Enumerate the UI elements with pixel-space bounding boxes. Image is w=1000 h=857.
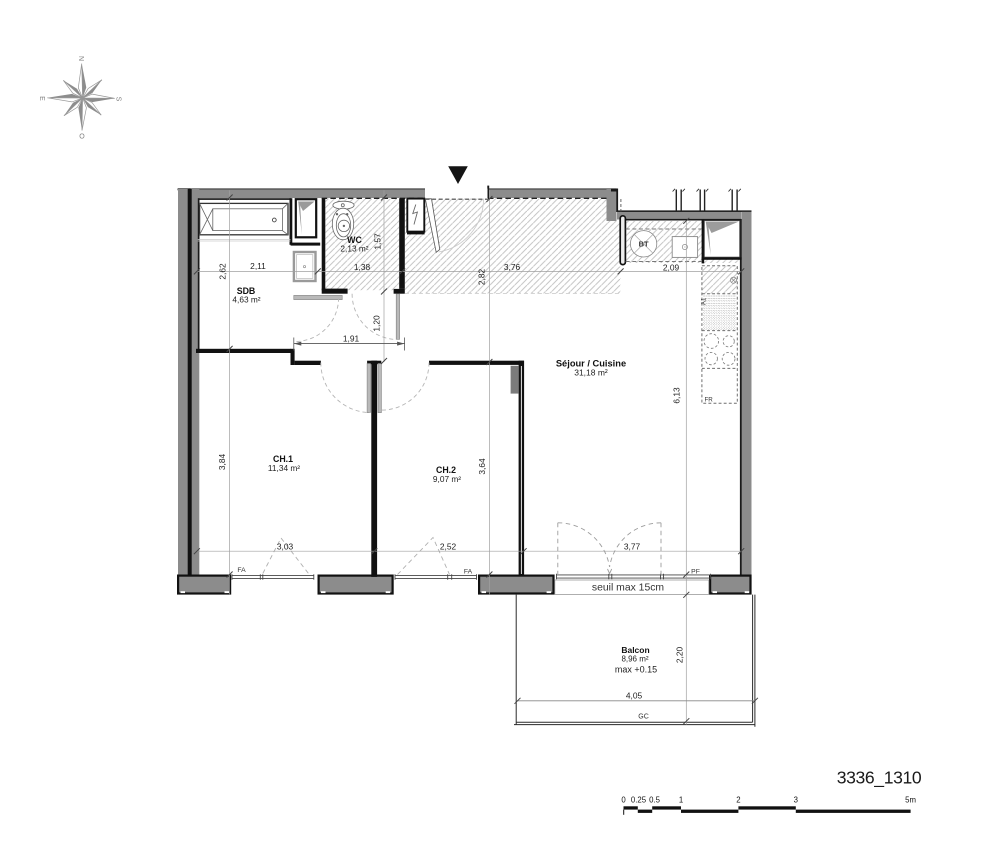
svg-text:2,62: 2,62 <box>218 263 228 280</box>
svg-text:2: 2 <box>736 796 740 805</box>
svg-text:9,07 m²: 9,07 m² <box>433 474 461 484</box>
svg-text:0.5: 0.5 <box>649 796 661 805</box>
svg-text:FA: FA <box>237 567 246 574</box>
svg-text:1: 1 <box>679 796 683 805</box>
svg-text:31,18 m²: 31,18 m² <box>574 368 608 378</box>
svg-text:3,77: 3,77 <box>624 542 641 552</box>
svg-text:GC: GC <box>638 714 649 721</box>
svg-text:2,13 m²: 2,13 m² <box>340 244 368 254</box>
svg-text:3,84: 3,84 <box>217 454 227 471</box>
svg-text:8,96 m²: 8,96 m² <box>621 655 648 664</box>
svg-text:E: E <box>38 96 45 101</box>
svg-text:3,64: 3,64 <box>477 458 487 475</box>
svg-text:1,20: 1,20 <box>372 315 382 332</box>
svg-text:3336_1310: 3336_1310 <box>837 768 922 789</box>
svg-text:N: N <box>77 56 84 61</box>
svg-text:3,76: 3,76 <box>504 262 521 272</box>
svg-text:2,20: 2,20 <box>675 647 685 664</box>
svg-text:FR: FR <box>705 397 714 404</box>
svg-text:1,38: 1,38 <box>354 262 371 272</box>
svg-text:0: 0 <box>621 796 626 805</box>
svg-text:2,09: 2,09 <box>663 263 680 273</box>
svg-text:1,91: 1,91 <box>343 334 360 344</box>
svg-text:PF: PF <box>691 569 700 576</box>
svg-text:4,63 m²: 4,63 m² <box>232 295 260 305</box>
svg-text:11,34 m²: 11,34 m² <box>268 463 300 473</box>
svg-text:seuil max 15cm: seuil max 15cm <box>592 583 664 594</box>
svg-text:BT: BT <box>639 240 649 249</box>
svg-text:S: S <box>115 97 122 102</box>
svg-text:4,05: 4,05 <box>626 691 643 701</box>
svg-text:max +0.15: max +0.15 <box>615 665 657 675</box>
svg-text:O: O <box>79 134 85 141</box>
svg-text:5m: 5m <box>905 796 916 805</box>
svg-text:2,52: 2,52 <box>440 542 457 552</box>
svg-text:1,57: 1,57 <box>373 233 383 250</box>
svg-text:2,82: 2,82 <box>477 269 487 286</box>
svg-text:2,11: 2,11 <box>250 261 266 271</box>
svg-text:3,03: 3,03 <box>277 542 294 552</box>
svg-text:0.25: 0.25 <box>631 796 647 805</box>
svg-text:FA: FA <box>464 569 473 576</box>
svg-text:6,13: 6,13 <box>672 387 682 404</box>
svg-text:Balcon: Balcon <box>621 645 649 655</box>
svg-text:3: 3 <box>794 796 798 805</box>
